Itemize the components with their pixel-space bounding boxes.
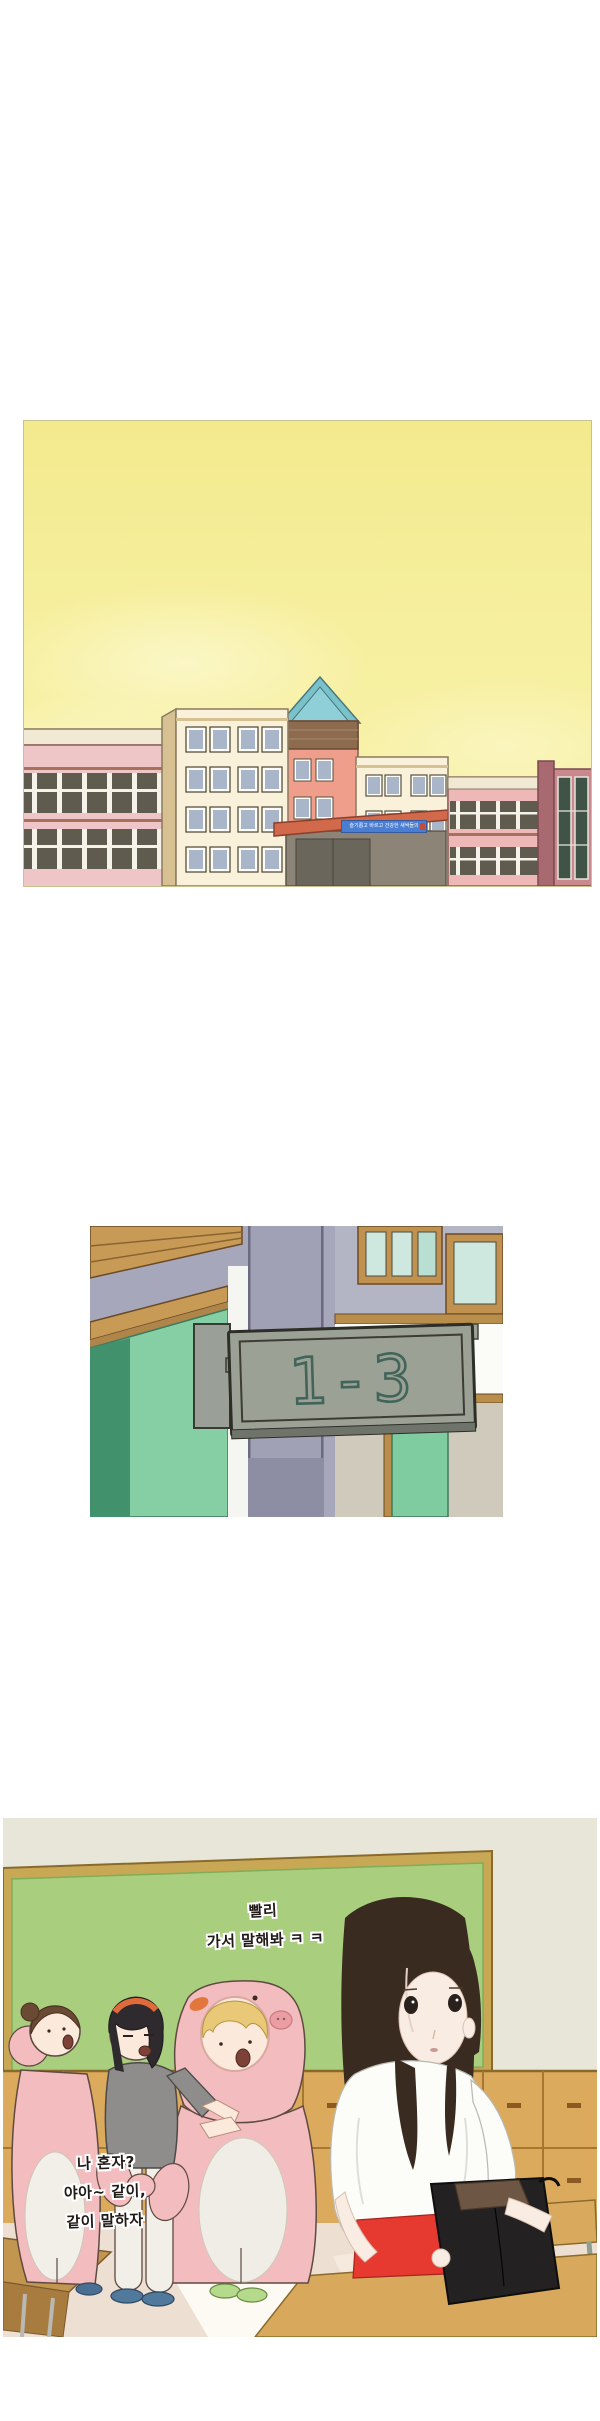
building-left-pink: [24, 729, 176, 886]
girl-c-shoe-2: [237, 2288, 267, 2302]
hallway-scene: 1-3: [90, 1226, 503, 1517]
webtoon-page: { "comic": { "panel1": { "name": "school…: [0, 0, 600, 2421]
girl-c-shoe-1: [210, 2284, 240, 2298]
building-center-cream: [162, 709, 288, 886]
school-buildings-scene: [24, 421, 591, 886]
panel-hallway-sign: 1-3: [90, 1226, 503, 1517]
panel-classroom-scene: 빨리 가서 말해봐 ㅋ ㅋ 나 혼자? 야아~ 같이, 같이 말하자: [3, 1818, 597, 2337]
building-right-pink: [448, 777, 540, 886]
pig-snout: [270, 2011, 292, 2029]
girl-a-shoe: [76, 2283, 102, 2295]
building-far-right-maroon: [538, 761, 591, 886]
room-sign-text: 1-3: [287, 1342, 417, 1420]
panel-school-exterior: 슬기롭고 바르고 건강한 새싹들의: [23, 420, 592, 887]
girl-blonde-pig-hood: [165, 1981, 317, 2302]
school-banner: 슬기롭고 바르고 건강한 새싹들의: [341, 820, 427, 833]
classroom-scene-art: [3, 1818, 597, 2337]
room-sign: 1-3: [228, 1324, 475, 1439]
girl-b-sneaker-2: [142, 2292, 174, 2306]
left-hand: [432, 2249, 450, 2267]
girl-b-sneaker-1: [111, 2289, 143, 2303]
